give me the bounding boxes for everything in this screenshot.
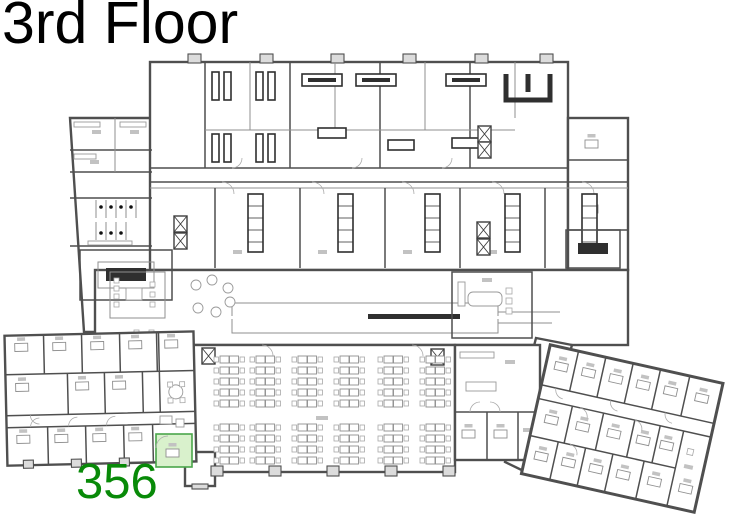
elevator-icon [477, 239, 490, 255]
room-number-label: 356 [76, 458, 158, 507]
page-title: 3rd Floor [2, 0, 238, 56]
elevator-icon [174, 216, 187, 232]
elevator-icon [478, 126, 491, 142]
right-office-wing [521, 345, 723, 512]
highlighted-room-356[interactable] [156, 434, 192, 467]
floor-plan-image [0, 0, 743, 520]
elevator-icon [478, 142, 491, 158]
elevator-icon [174, 233, 187, 249]
floor-plan-page: 3rd Floor 356 [0, 0, 743, 520]
elevator-icon [477, 222, 490, 238]
elevator-icon [202, 348, 215, 364]
